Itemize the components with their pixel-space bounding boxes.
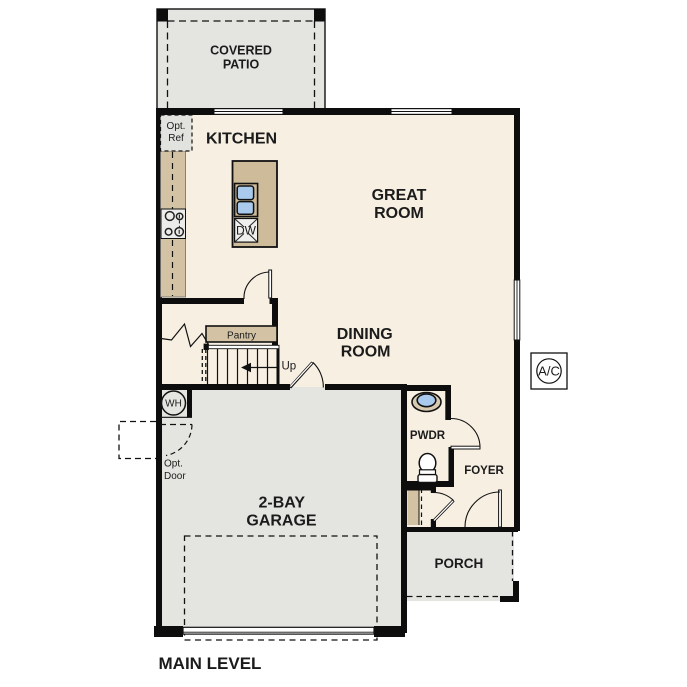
svg-text:ROOM: ROOM xyxy=(374,205,424,222)
svg-text:PORCH: PORCH xyxy=(435,556,484,571)
svg-text:MAIN LEVEL: MAIN LEVEL xyxy=(159,654,262,673)
svg-text:Pantry: Pantry xyxy=(227,331,256,342)
svg-text:GREAT: GREAT xyxy=(372,187,427,204)
svg-text:COVERED: COVERED xyxy=(210,44,272,58)
svg-text:Up: Up xyxy=(282,361,297,373)
svg-text:2-BAY: 2-BAY xyxy=(259,494,306,511)
svg-text:A/C: A/C xyxy=(538,364,560,379)
svg-text:FOYER: FOYER xyxy=(464,465,504,477)
svg-text:ROOM: ROOM xyxy=(341,344,391,361)
svg-text:Opt.: Opt. xyxy=(167,121,186,132)
svg-text:GARAGE: GARAGE xyxy=(246,513,317,530)
svg-text:PATIO: PATIO xyxy=(223,58,260,72)
svg-text:KITCHEN: KITCHEN xyxy=(206,131,277,148)
svg-text:DINING: DINING xyxy=(337,326,393,343)
svg-text:Ref: Ref xyxy=(168,133,184,144)
svg-text:Door: Door xyxy=(164,471,186,482)
svg-text:Opt.: Opt. xyxy=(164,459,183,470)
svg-text:PWDR: PWDR xyxy=(410,430,446,442)
svg-text:WH: WH xyxy=(165,399,182,410)
svg-text:DW: DW xyxy=(236,224,257,238)
